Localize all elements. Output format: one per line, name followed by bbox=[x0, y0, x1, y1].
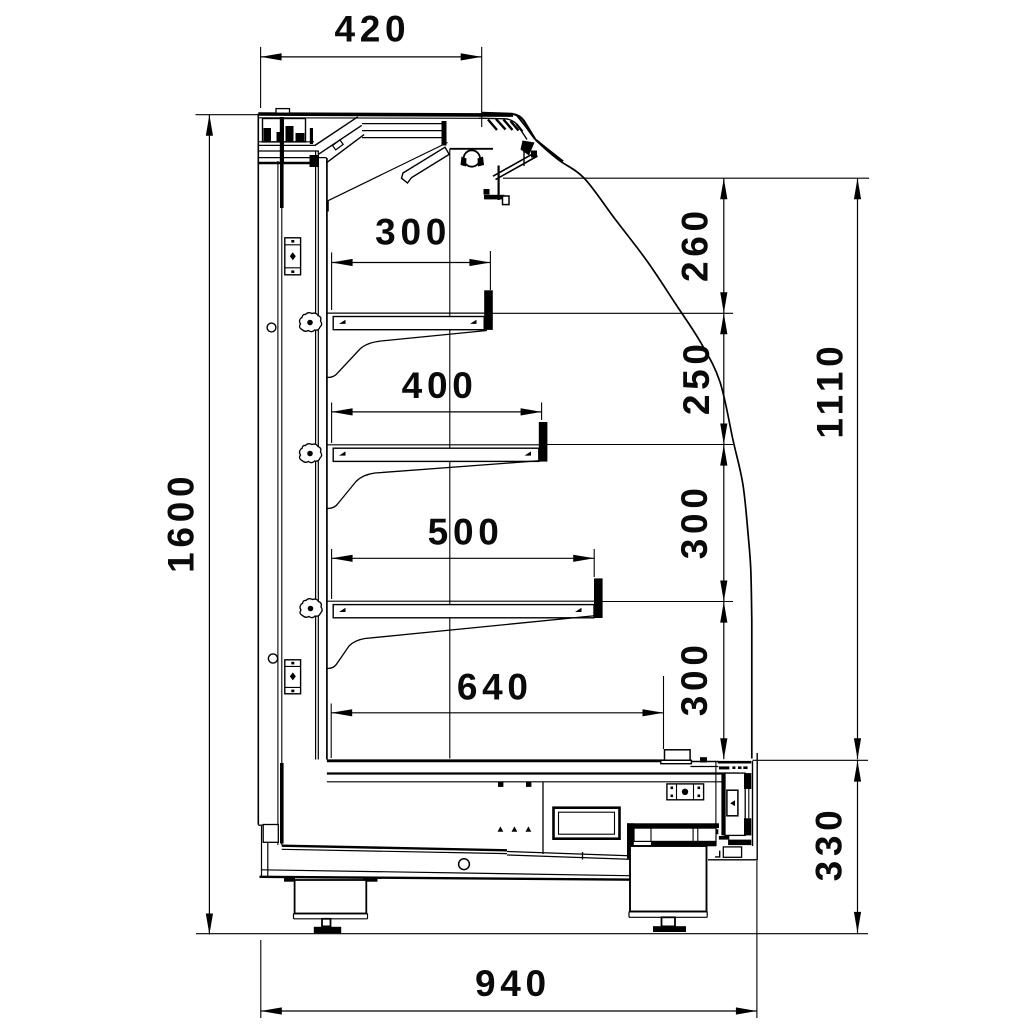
svg-text:260: 260 bbox=[675, 206, 716, 282]
svg-text:250: 250 bbox=[676, 339, 717, 415]
svg-text:1110: 1110 bbox=[810, 342, 851, 439]
svg-text:500: 500 bbox=[428, 512, 504, 553]
svg-text:420: 420 bbox=[334, 9, 410, 50]
svg-text:300: 300 bbox=[674, 640, 715, 716]
svg-text:640: 640 bbox=[457, 666, 533, 707]
svg-text:940: 940 bbox=[475, 963, 551, 1004]
svg-text:300: 300 bbox=[674, 483, 715, 559]
svg-text:1600: 1600 bbox=[161, 472, 202, 573]
svg-text:300: 300 bbox=[375, 212, 451, 253]
svg-text:330: 330 bbox=[808, 806, 849, 882]
svg-text:400: 400 bbox=[402, 365, 478, 406]
